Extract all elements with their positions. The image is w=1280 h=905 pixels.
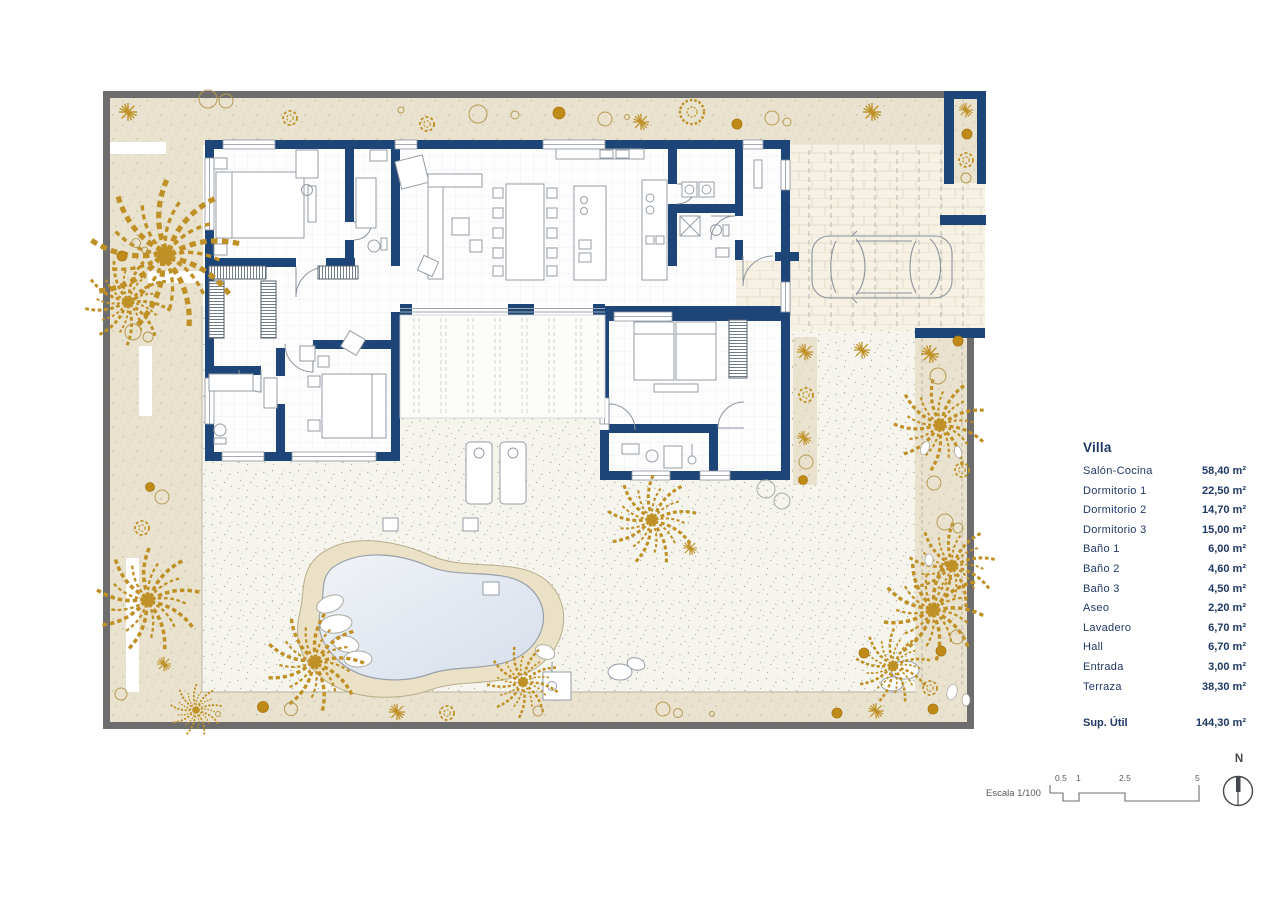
floor-plan-sheet: Villa Salón-Cocina 58,40 m² Dormitorio 1… [0,0,1280,905]
scale-tick: 0.5 [1055,773,1067,783]
legend-row: Terraza 38,30 m² [1083,681,1246,701]
room-area: 6,00 m² [1208,543,1246,555]
area-legend: Villa Salón-Cocina 58,40 m² Dormitorio 1… [1083,440,1246,729]
legend-row: Dormitorio 1 22,50 m² [1083,485,1246,505]
room-label: Lavadero [1083,622,1131,634]
east-planter [793,337,817,485]
room-label: Salón-Cocina [1083,465,1153,477]
legend-row: Baño 2 4,60 m² [1083,563,1246,583]
room-label: Dormitorio 2 [1083,504,1147,516]
room-label: Baño 3 [1083,583,1120,595]
scale-tick: 5 [1195,773,1200,783]
room-area: 6,70 m² [1208,622,1246,634]
room-area: 6,70 m² [1208,641,1246,653]
legend-row: Aseo 2,20 m² [1083,602,1246,622]
legend-row: Dormitorio 3 15,00 m² [1083,524,1246,544]
north-arrow [1224,777,1253,806]
total-label: Sup. Útil [1083,717,1128,729]
room-area: 4,50 m² [1208,583,1246,595]
legend-row: Dormitorio 2 14,70 m² [1083,504,1246,524]
room-area: 22,50 m² [1202,485,1246,497]
legend-title: Villa [1083,440,1246,455]
legend-row: Baño 3 4,50 m² [1083,583,1246,603]
room-label: Dormitorio 3 [1083,524,1147,536]
legend-row: Lavadero 6,70 m² [1083,622,1246,642]
room-label: Hall [1083,641,1103,653]
room-label: Baño 1 [1083,543,1120,555]
north-label: N [1231,753,1247,765]
scale-tick: 2.5 [1119,773,1131,783]
room-area: 38,30 m² [1202,681,1246,693]
room-area: 14,70 m² [1202,504,1246,516]
covered-terrace [400,315,605,418]
room-label: Dormitorio 1 [1083,485,1147,497]
total-area: 144,30 m² [1196,717,1246,729]
legend-total-row: Sup. Útil 144,30 m² [1083,717,1246,729]
room-area: 3,00 m² [1208,661,1246,673]
room-label: Entrada [1083,661,1124,673]
room-area: 2,20 m² [1208,602,1246,614]
legend-row: Salón-Cocina 58,40 m² [1083,465,1246,485]
legend-row: Baño 1 6,00 m² [1083,543,1246,563]
legend-row: Hall 6,70 m² [1083,641,1246,661]
room-area: 58,40 m² [1202,465,1246,477]
scale-label: Escala 1/100 [986,788,1041,799]
legend-row: Entrada 3,00 m² [1083,661,1246,681]
scale-tick: 1 [1076,773,1081,783]
room-area: 4,60 m² [1208,563,1246,575]
room-area: 15,00 m² [1202,524,1246,536]
room-label: Baño 2 [1083,563,1120,575]
room-label: Terraza [1083,681,1122,693]
room-label: Aseo [1083,602,1109,614]
scale-bar [1050,785,1199,801]
